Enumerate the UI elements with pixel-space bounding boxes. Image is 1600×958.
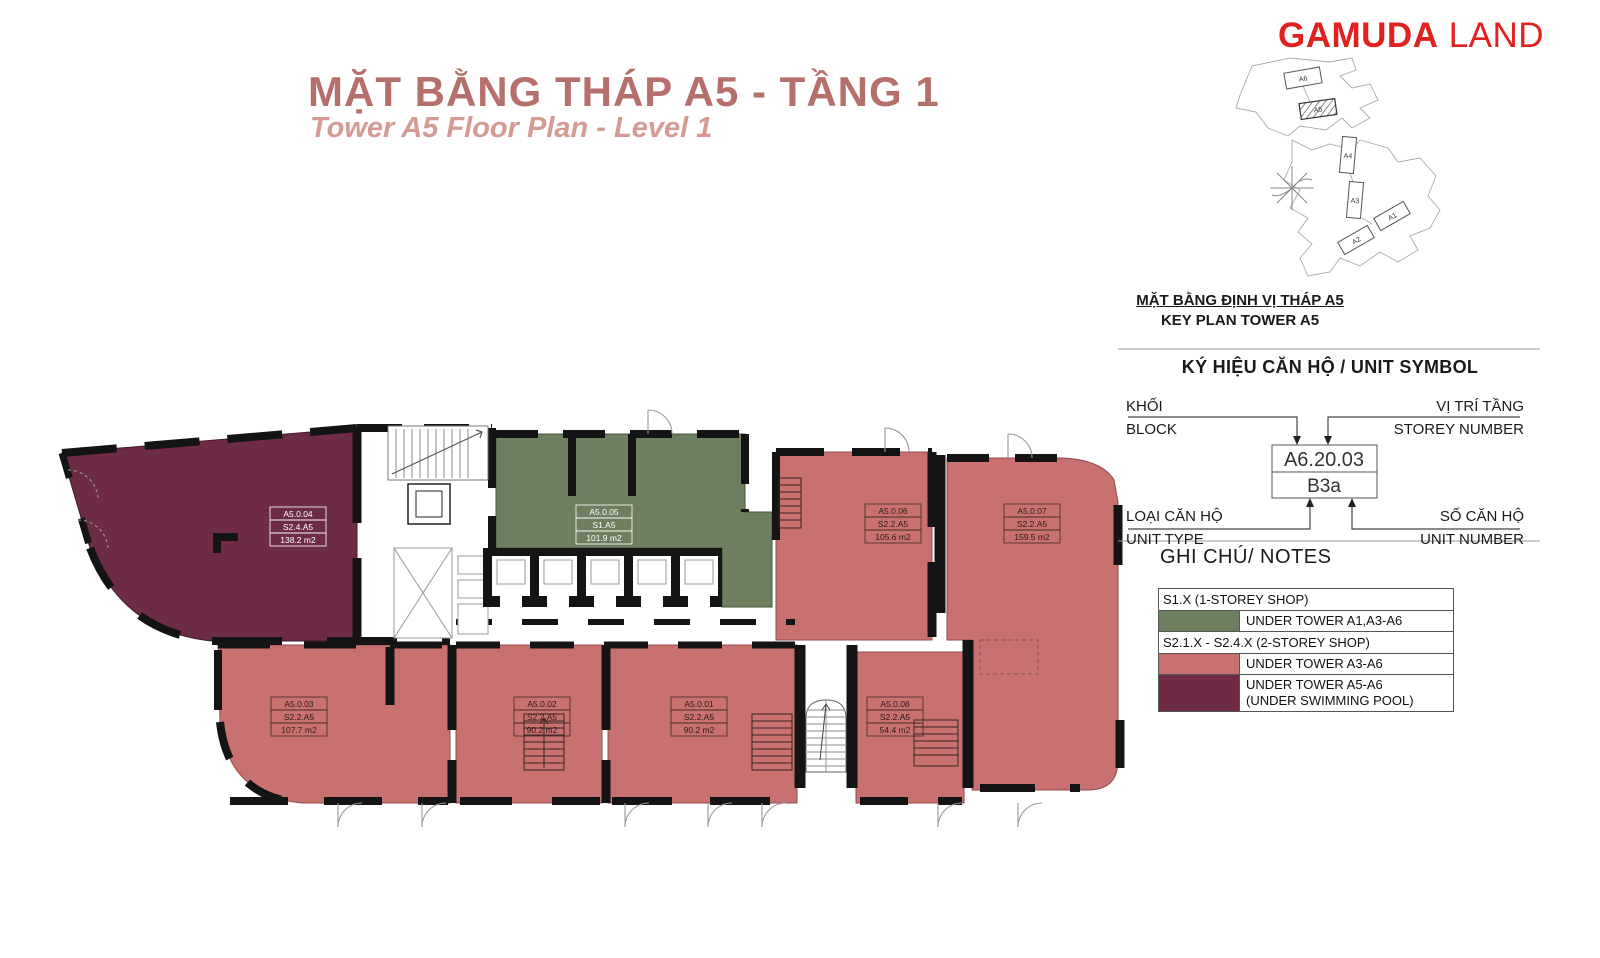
key-plan-building-A5-highlighted: A5 [1299, 99, 1337, 120]
unit-type: S2.2.A5 [684, 712, 715, 722]
unit-type: S2.2.A5 [1017, 519, 1048, 529]
central-staircase [806, 700, 846, 772]
service-rooms [394, 548, 488, 638]
floor-plan-drawing: A5.0.04 S2.4.A5 138.2 m2 A5.0.05 S1.A5 1… [0, 0, 1600, 958]
label-storey-vi: VỊ TRÍ TẦNG [1436, 398, 1524, 415]
svg-text:A6: A6 [1298, 75, 1308, 83]
unit-type: S2.2.A5 [880, 712, 911, 722]
elevator-bank [483, 548, 722, 607]
unit-code: A5.0.01 [684, 699, 714, 709]
key-plan-building-A2: A2 [1338, 225, 1374, 254]
label-unit-type-vi: LOẠI CĂN HỘ [1126, 508, 1223, 525]
unit-A5.0.03 [218, 645, 450, 803]
unit-type: S2.2.A5 [527, 712, 558, 722]
elevator-cars [492, 556, 718, 596]
svg-text:A5: A5 [1313, 106, 1323, 114]
unit-area: 159.5 m2 [1014, 532, 1050, 542]
unit-area: 90.2 m2 [527, 725, 558, 735]
arrow-up-unit-type [1306, 498, 1314, 507]
unit-area: 107.7 m2 [281, 725, 317, 735]
unit-code: A5.0.07 [1017, 506, 1047, 516]
label-block-vi: KHỐI [1126, 397, 1163, 415]
arrow-up-unit-number [1348, 498, 1356, 507]
unit-symbol-diagram: A6.20.03 B3a KHỐI BLOCK VỊ TRÍ TẦNG STOR… [1126, 397, 1524, 548]
unit-code: A5.0.02 [527, 699, 557, 709]
unit-A5.0.06 [776, 452, 932, 640]
unit-code: A5.0.03 [284, 699, 314, 709]
svg-text:A4: A4 [1343, 153, 1352, 161]
arrow-down-block [1293, 436, 1301, 445]
unit-area: 138.2 m2 [280, 535, 316, 545]
unit-A5.0.02 [456, 645, 602, 803]
unit-type: S2.2.A5 [284, 712, 315, 722]
unit-symbol-example-type: B3a [1307, 476, 1341, 497]
key-plan-building-A3: A3 [1346, 181, 1363, 218]
unit-area: 105.6 m2 [875, 532, 911, 542]
compass-icon [1270, 166, 1314, 210]
arrow-down-storey [1324, 436, 1332, 445]
unit-area: 101.9 m2 [586, 533, 622, 543]
unit-A5.0.01 [608, 645, 797, 803]
unit-symbol-example-code: A6.20.03 [1284, 449, 1364, 471]
unit-code: A5.0.06 [878, 506, 908, 516]
unit-code: A5.0.08 [880, 699, 910, 709]
unit-area: 90.2 m2 [684, 725, 715, 735]
label-unit-number-vi: SỐ CĂN HỘ [1440, 507, 1524, 525]
key-plan-building-A1: A1 [1374, 201, 1410, 230]
label-block-en: BLOCK [1126, 421, 1177, 438]
elevator-shaft [408, 484, 450, 524]
floor-plan: A5.0.04 S2.4.A5 138.2 m2 A5.0.05 S1.A5 1… [62, 410, 1120, 827]
key-plan-building-A4: A4 [1339, 136, 1356, 173]
unit-area: 54.4 m2 [880, 725, 911, 735]
key-plan-building-A6: A6 [1284, 67, 1322, 89]
unit-type: S2.4.A5 [283, 522, 314, 532]
page: MẶT BẰNG THÁP A5 - TẦNG 1 Tower A5 Floor… [0, 0, 1600, 958]
svg-text:A3: A3 [1350, 198, 1359, 206]
unit-type: S1.A5 [592, 520, 615, 530]
label-unit-type-en: UNIT TYPE [1126, 531, 1204, 548]
unit-code: A5.0.04 [283, 509, 313, 519]
unit-code: A5.0.05 [589, 507, 619, 517]
unit-type: S2.2.A5 [878, 519, 909, 529]
label-unit-number-en: UNIT NUMBER [1420, 531, 1524, 548]
key-plan-sketch: A6 A5 A4 A3 A1 [1236, 58, 1440, 276]
stairwell-core [388, 426, 488, 480]
label-storey-en: STOREY NUMBER [1394, 421, 1524, 438]
